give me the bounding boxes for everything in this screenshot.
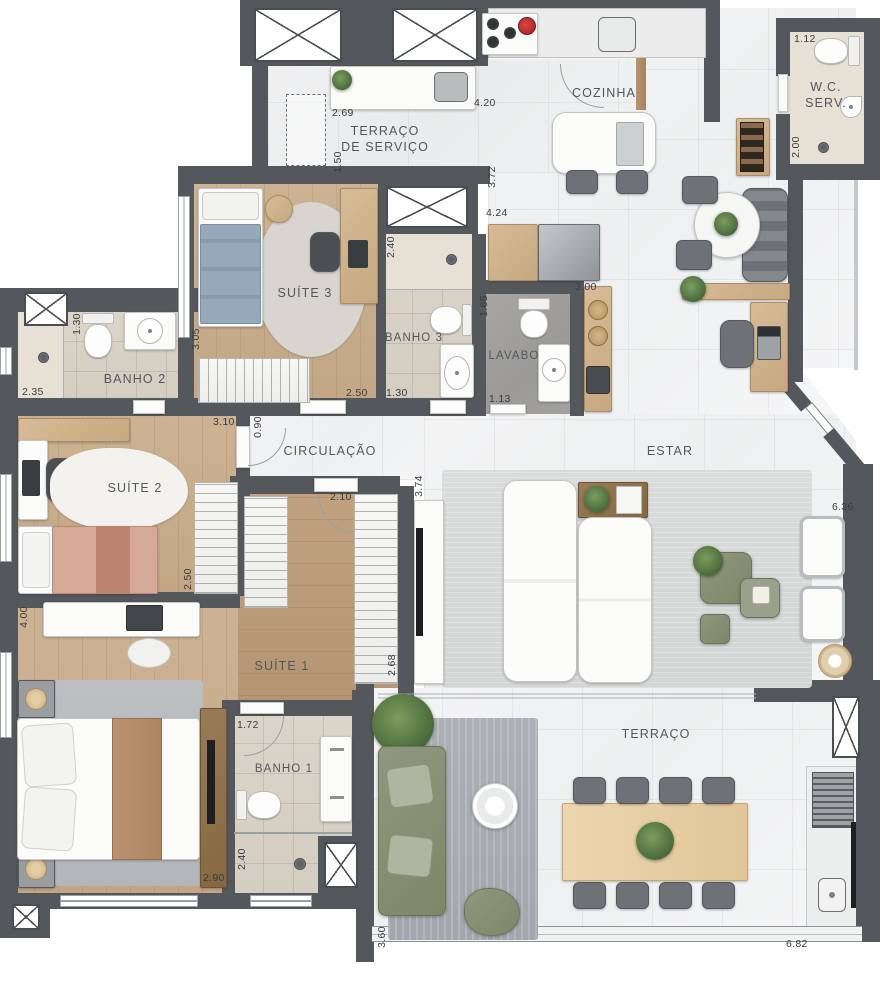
laundry-sink [434, 72, 468, 102]
room-label-banho-2: BANHO 2 [104, 372, 167, 386]
bed-runner [112, 718, 162, 860]
dimension-label: 3.05 [190, 319, 202, 359]
sink [137, 318, 163, 344]
pillow [21, 786, 77, 851]
dimension-label: 1.65 [478, 286, 490, 326]
door-opening [778, 74, 788, 112]
chair [676, 240, 712, 270]
dimension-label: 2.40 [385, 227, 397, 267]
wardrobe [198, 358, 310, 403]
dining-chair [573, 777, 606, 804]
dining-chair [616, 882, 649, 909]
dimension-label: 2.10 [330, 491, 352, 503]
dimension-label: 3.72 [486, 157, 498, 197]
toilet-tank [236, 790, 247, 820]
room-label-banho-1: BANHO 1 [255, 763, 313, 775]
dimension-label: 1.72 [237, 719, 259, 731]
dimension-label: 4.00 [18, 597, 30, 637]
dimension-label: 3.10 [213, 416, 235, 428]
sofa [578, 517, 652, 683]
wall [776, 32, 790, 76]
toilet [520, 310, 548, 338]
armchair [800, 516, 845, 578]
room-label-banho-3: BANHO 3 [385, 332, 443, 344]
door-opening [490, 404, 526, 414]
bed-runner [96, 526, 130, 594]
wall [398, 486, 414, 700]
shower-head [38, 352, 49, 363]
dining-chair [702, 777, 735, 804]
lamp [25, 858, 47, 880]
stool [616, 170, 648, 194]
round-coffee-table [472, 783, 518, 829]
door-opening [240, 702, 284, 714]
sliding-door [378, 692, 756, 700]
dimension-label: 1.30 [71, 304, 83, 344]
room-label-estar: ESTAR [647, 444, 693, 458]
plant [584, 486, 610, 512]
shower-head [446, 254, 457, 265]
pillow [21, 722, 77, 787]
plant [636, 822, 674, 860]
duct-shaft [324, 842, 358, 888]
desk-chair [720, 320, 754, 368]
tv [416, 528, 423, 636]
decor-tray [752, 586, 770, 604]
dimension-label: 2.35 [22, 386, 44, 398]
dining-chair [702, 882, 735, 909]
bed-blanket [200, 224, 261, 324]
armchair [800, 586, 845, 642]
window [178, 196, 190, 338]
washer-outline [286, 94, 326, 166]
plant [693, 546, 723, 576]
dresser [43, 602, 200, 637]
burner [487, 36, 499, 48]
toilet-tank [82, 313, 114, 324]
sofa [503, 480, 577, 682]
sink-drain [829, 892, 835, 898]
toilet-tank [462, 304, 472, 336]
glass-edge [854, 180, 858, 370]
decor-bowl [588, 300, 608, 320]
window [60, 895, 198, 907]
shower-divider [234, 832, 352, 834]
dimension-label: 1.30 [386, 387, 408, 399]
stool [566, 170, 598, 194]
room-label-terraco-servico: TERRAÇO [351, 124, 420, 138]
window [250, 895, 312, 907]
plant [714, 212, 738, 236]
shower-head [818, 142, 829, 153]
door-opening [430, 400, 466, 414]
room-label-suite-2: SUÍTE 2 [108, 481, 163, 495]
laptop [757, 326, 781, 360]
dimension-label: 1.12 [794, 33, 816, 45]
sink [444, 356, 470, 390]
wall [788, 180, 803, 382]
dimension-label: 3.74 [413, 466, 425, 506]
room-label-terraco: TERRAÇO [622, 727, 691, 741]
plant [680, 276, 706, 302]
toilet [247, 791, 281, 819]
toilet-tank [848, 36, 860, 66]
dimension-label: 2.50 [182, 559, 194, 599]
floor-plan: TERRAÇO DE SERVIÇO COZINHA W.C. SERV. SU… [0, 0, 880, 1000]
wall [776, 114, 790, 164]
duct-shaft [386, 186, 468, 228]
tv [207, 740, 215, 824]
door-opening [314, 478, 358, 492]
duct-shaft [832, 696, 860, 758]
coffee-machine [586, 366, 610, 394]
dimension-label: 2.69 [332, 107, 354, 119]
window [0, 652, 12, 738]
dimension-label: 1.50 [332, 142, 344, 182]
pouf [127, 638, 171, 668]
dimension-label: 4.20 [474, 97, 496, 109]
wardrobe [244, 496, 288, 608]
wall [704, 0, 720, 122]
window [0, 474, 12, 562]
picture-frame [616, 486, 642, 514]
wardrobe [194, 482, 238, 594]
room-label-lavabo: LAVABO [489, 350, 540, 362]
dimension-label: 2.50 [346, 387, 368, 399]
dimension-label: 2.90 [203, 872, 225, 884]
decor-bowl [588, 326, 608, 346]
dimension-label: 2.40 [236, 839, 248, 879]
dimension-label: 3.60 [376, 917, 388, 957]
burner [487, 18, 499, 30]
toilet [430, 306, 462, 334]
kitchen-sink [598, 17, 636, 52]
side-table [818, 644, 852, 678]
dimension-label: 4.24 [486, 207, 508, 219]
faucet [330, 796, 344, 799]
room-label-circulacao: CIRCULAÇÃO [284, 444, 377, 458]
chair [682, 176, 718, 204]
tv [851, 822, 856, 908]
duct-shaft [12, 904, 40, 930]
toilet [814, 38, 848, 64]
grill [812, 772, 854, 828]
room-label-suite-3: SUÍTE 3 [278, 286, 333, 300]
fridge [538, 224, 600, 281]
room-label-cozinha: COZINHA [572, 86, 636, 100]
dimension-label: 1.13 [489, 393, 511, 405]
dining-chair [573, 882, 606, 909]
wall [570, 280, 584, 416]
dimension-label: 6.82 [786, 938, 808, 950]
plant [372, 694, 434, 754]
sofa-cushion [386, 834, 434, 878]
monitor [348, 240, 368, 268]
plant [332, 70, 352, 90]
faucet [330, 748, 344, 751]
tv [126, 605, 163, 631]
wall [864, 30, 880, 180]
dining-chair [659, 777, 692, 804]
elevator-shaft [254, 8, 342, 62]
red-pot [518, 17, 536, 35]
wine-rack [740, 122, 764, 172]
room-label-wc-serv: W.C. [810, 80, 841, 94]
dimension-label: 3.00 [575, 281, 597, 293]
desk-shelf [18, 418, 130, 442]
desk-chair [310, 232, 340, 272]
dining-chair [659, 882, 692, 909]
shower-head [294, 858, 306, 870]
dimension-label: 6.36 [832, 501, 854, 513]
room-label-wc-serv-2: SERV. [805, 96, 847, 110]
cabinet [488, 224, 538, 281]
pillow [202, 192, 259, 220]
toilet [84, 324, 112, 358]
dimension-label: 2.00 [790, 127, 802, 167]
sink [542, 358, 566, 382]
pouf-armchair [464, 888, 520, 936]
monitor [22, 460, 40, 496]
room-label-terraco-servico-2: DE SERVIÇO [341, 140, 429, 154]
burner [504, 27, 516, 39]
dimension-label: 2.68 [386, 645, 398, 685]
side-table [700, 614, 730, 644]
lamp [25, 688, 47, 710]
door-opening [133, 400, 165, 414]
duct-shaft [24, 292, 68, 326]
sofa-cushion [385, 763, 434, 809]
window [0, 347, 12, 375]
wall [252, 60, 268, 182]
dimension-label: 0.90 [252, 407, 264, 447]
room-label-suite-1: SUÍTE 1 [255, 659, 310, 673]
toilet-tank [518, 298, 550, 310]
serving-tray [616, 122, 644, 166]
elevator-shaft [392, 8, 478, 62]
side-table [265, 195, 293, 223]
pillow [22, 532, 50, 588]
dining-chair [616, 777, 649, 804]
